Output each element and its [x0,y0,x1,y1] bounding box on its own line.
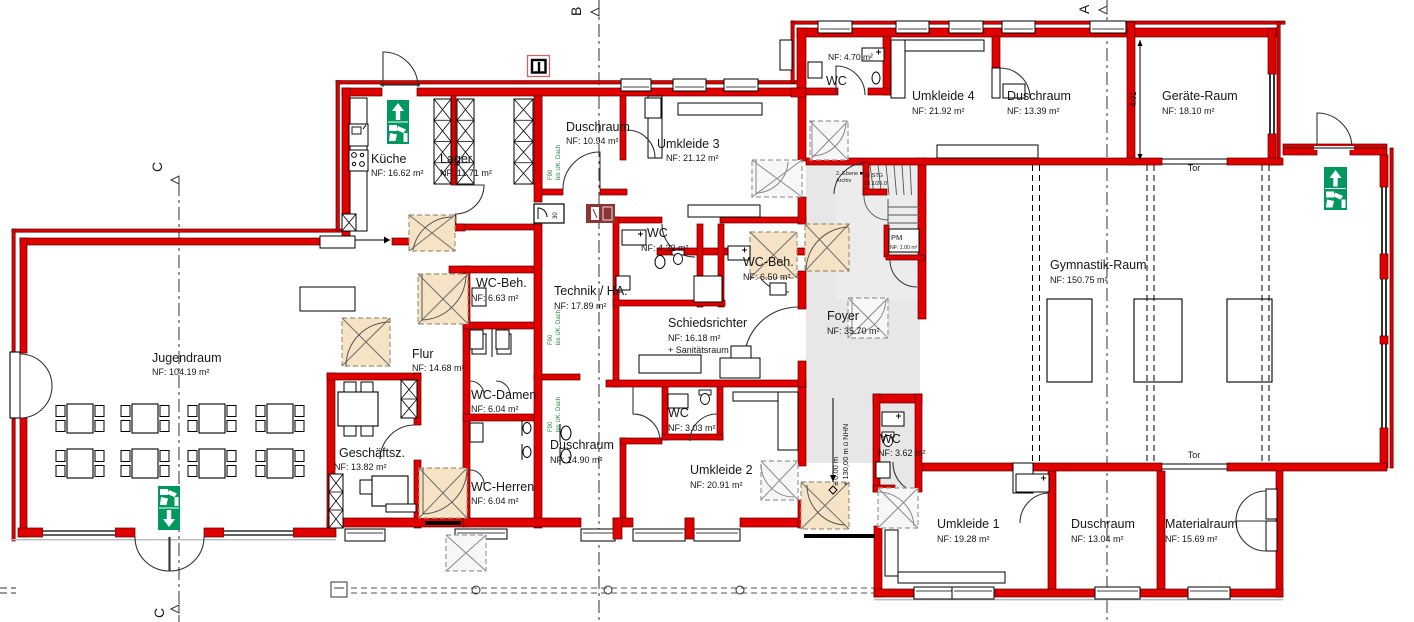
svg-text:Tor: Tor [1188,450,1201,460]
svg-text:NF: 35.70 m²: NF: 35.70 m² [827,326,880,336]
svg-text:Tor: Tor [1188,163,1201,173]
svg-text:F90: F90 [548,334,554,345]
svg-text:NF: 14.68 m²: NF: 14.68 m² [412,363,465,373]
svg-text:Materialraum: Materialraum [1165,517,1238,531]
svg-text:NF: 10.94 m²: NF: 10.94 m² [566,136,619,146]
svg-text:NF: 3.62 m²: NF: 3.62 m² [878,448,926,458]
svg-text:WC: WC [880,432,901,446]
svg-text:Foyer: Foyer [827,309,859,323]
svg-text:NF: 3.03 m²: NF: 3.03 m² [668,423,716,433]
svg-text:NF: 18.10 m²: NF: 18.10 m² [1162,106,1215,116]
svg-text:Duschraum: Duschraum [566,120,630,134]
svg-text:WC-Beh.: WC-Beh. [743,255,794,269]
svg-text:NF: 13.39 m²: NF: 13.39 m² [1007,106,1060,116]
svg-text:WC-Herren: WC-Herren [471,480,534,494]
svg-text:WC-Beh.: WC-Beh. [476,276,527,290]
svg-text:Technik / HA.: Technik / HA. [554,284,628,298]
svg-text:Flur: Flur [412,347,434,361]
svg-text:+ 130,00 m ü NHN: + 130,00 m ü NHN [841,424,850,486]
svg-text:NF: 17.89 m²: NF: 17.89 m² [554,301,607,311]
svg-text:Duschraum: Duschraum [1071,517,1135,531]
svg-text:B: B [568,7,584,16]
svg-text:NF: 13.04 m²: NF: 13.04 m² [1071,534,1124,544]
svg-text:NF: 6.04 m²: NF: 6.04 m² [471,496,519,506]
svg-text:NF: 1.00 m²: NF: 1.00 m² [890,245,918,251]
svg-text:bis UK. Dach: bis UK. Dach [556,145,562,180]
svg-text:NF: 11.71 m²: NF: 11.71 m² [440,168,492,178]
svg-text:2. Ebene: 2. Ebene [836,171,858,177]
svg-text:NF: 150.75 m²: NF: 150.75 m² [1050,275,1108,285]
svg-text:NF: 19.28 m²: NF: 19.28 m² [937,534,990,544]
svg-text:NF: 104.19 m²: NF: 104.19 m² [152,367,210,377]
svg-text:NF: 15.69 m²: NF: 15.69 m² [1165,534,1218,544]
svg-text:Geschäftsz.: Geschäftsz. [339,446,405,460]
svg-text:bis UK. Dach: bis UK. Dach [556,310,562,345]
svg-text:NF: 4.70 m²: NF: 4.70 m² [828,52,873,62]
svg-text:Umkleide 2: Umkleide 2 [690,463,753,477]
svg-text:Schiedsrichter: Schiedsrichter [668,316,747,330]
svg-text:NF: 16.62 m²: NF: 16.62 m² [371,168,424,178]
svg-text:Gymnastik-Raum: Gymnastik-Raum [1050,258,1147,272]
svg-text:18.1/26.0: 18.1/26.0 [864,181,887,187]
svg-text:WC-Damen: WC-Damen [471,388,536,402]
svg-text:Lager: Lager [440,152,472,166]
svg-text:A: A [1076,4,1092,14]
svg-text:NF: 16.18 m²: NF: 16.18 m² [668,333,721,343]
svg-text:C: C [151,608,167,618]
svg-text:WC: WC [647,226,668,240]
svg-text:C: C [149,162,165,172]
svg-text:+ Sanitätsraum: + Sanitätsraum [668,345,729,355]
svg-text:Duschraum: Duschraum [550,438,614,452]
svg-text:Geräte-Raum: Geräte-Raum [1162,89,1238,103]
svg-text:NF: 20.91 m²: NF: 20.91 m² [690,480,743,490]
svg-text:NF: 6.50 m²: NF: 6.50 m² [743,272,791,282]
svg-text:NF: 21.12 m²: NF: 21.12 m² [666,153,719,163]
svg-text:NF: 21.92 m²: NF: 21.92 m² [912,106,965,116]
svg-text:4.01: 4.01 [1129,91,1138,107]
svg-text:30: 30 [553,212,559,219]
svg-text:F90: F90 [548,421,554,432]
svg-text:NF: 4.32 m²: NF: 4.32 m² [641,243,689,253]
svg-text:Umkleide 4: Umkleide 4 [912,89,975,103]
svg-text:Umkleide 1: Umkleide 1 [937,517,1000,531]
svg-text:Duschraum: Duschraum [1007,89,1071,103]
svg-text:bis UK. Dach: bis UK. Dach [556,397,562,432]
svg-text:WC: WC [668,406,689,420]
svg-text:WC: WC [826,74,847,88]
svg-text:Jugendraum: Jugendraum [152,351,222,365]
svg-text:Umkleide 3: Umkleide 3 [657,137,720,151]
svg-text:NF: 6.04 m²: NF: 6.04 m² [471,404,519,414]
svg-text:PM: PM [891,233,902,242]
svg-text:Küche: Küche [371,152,406,166]
svg-text:NF: 6.63 m²: NF: 6.63 m² [471,293,519,303]
svg-text:± 0.00 m: ± 0.00 m [831,457,840,486]
svg-text:F90: F90 [548,169,554,180]
svg-text:15 STG: 15 STG [864,173,883,179]
svg-text:NF: 14.90 m²: NF: 14.90 m² [550,455,603,465]
svg-text:NF: 13.82 m²: NF: 13.82 m² [334,462,387,472]
